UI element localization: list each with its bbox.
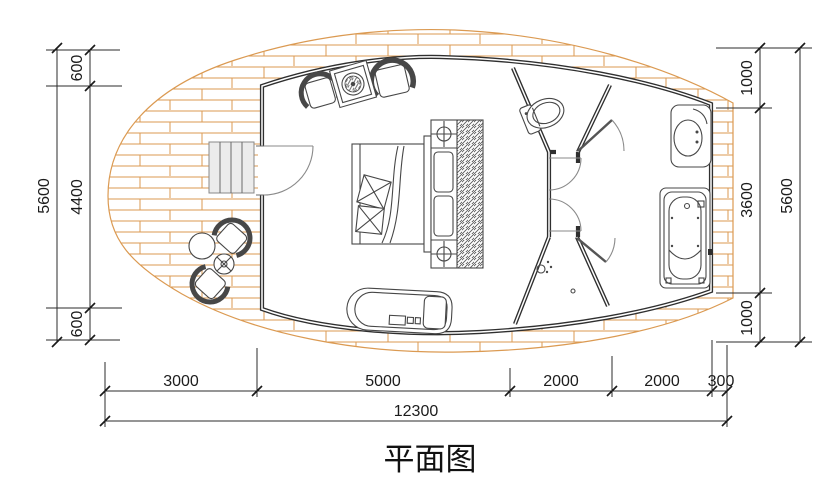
dim-left-600-top: 600 [69,55,86,82]
dim-right-1000-bottom: 1000 [739,300,756,336]
dim-right-1000-top: 1000 [739,60,756,96]
dim-bottom-2000-b: 2000 [644,373,680,390]
dim-right-total: 5600 [779,178,796,214]
dim-bottom-total: 12300 [394,403,439,420]
floor-plan-canvas: 600 4400 600 5600 1000 3600 1000 5600 30… [0,0,837,496]
dim-bottom-5000: 5000 [365,373,401,390]
dim-left-600-bottom: 600 [69,311,86,338]
sofa-bench-icon [346,287,453,334]
floor-plan-drawing: 600 4400 600 5600 1000 3600 1000 5600 30… [0,0,837,496]
bathtub-icon [660,188,713,288]
washbasin-icon [671,105,711,167]
dim-bottom-300: 300 [708,373,735,390]
dim-right-3600: 3600 [739,182,756,218]
stairs-icon [209,142,254,193]
parasol-base-icon [214,254,234,274]
dim-left-4400: 4400 [69,179,86,215]
outdoor-table-icon [189,233,215,259]
dim-bottom-2000-a: 2000 [543,373,579,390]
dim-bottom-3000: 3000 [163,373,199,390]
wardrobe-icon [457,120,483,268]
dim-left-total: 5600 [36,178,53,214]
drawing-title: 平面图 [384,442,477,477]
